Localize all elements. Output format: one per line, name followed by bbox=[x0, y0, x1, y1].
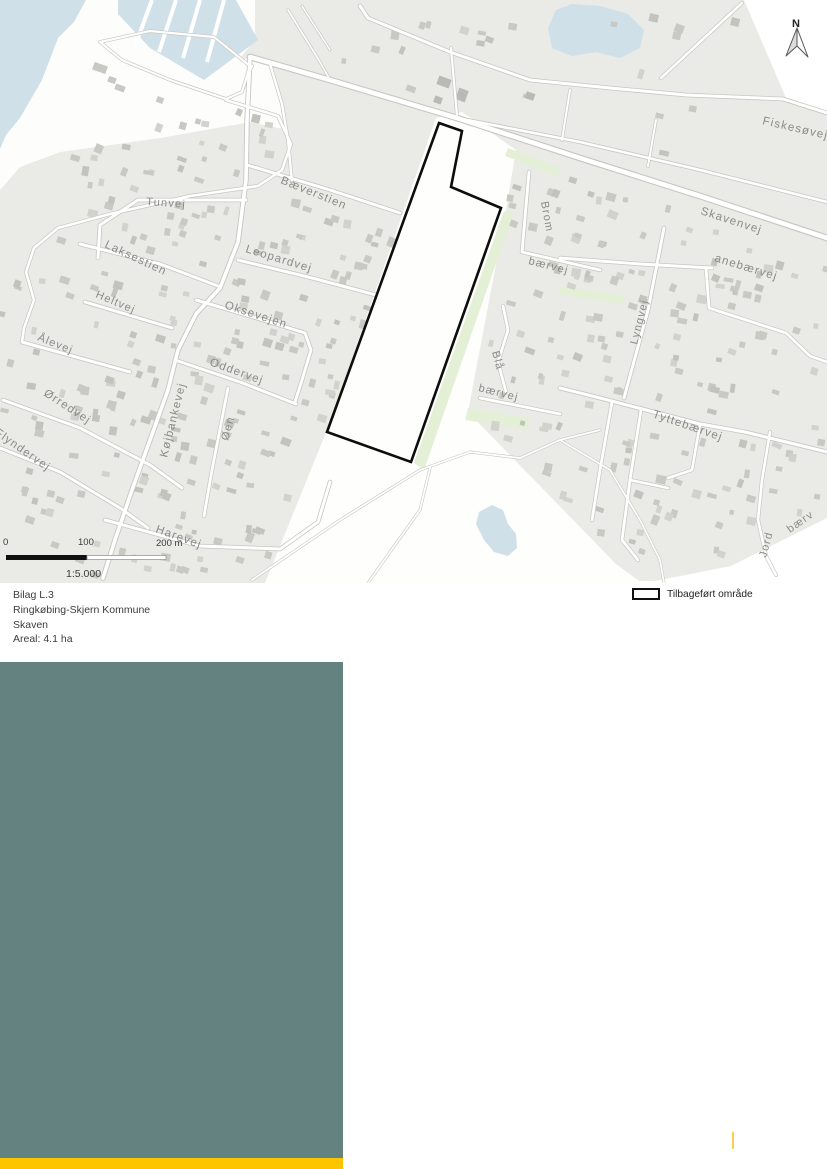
svg-text:1:5.000: 1:5.000 bbox=[66, 568, 101, 580]
svg-text:200 m: 200 m bbox=[156, 538, 182, 549]
svg-text:0: 0 bbox=[3, 537, 8, 548]
svg-text:N: N bbox=[792, 18, 800, 30]
svg-text:100: 100 bbox=[78, 537, 94, 548]
